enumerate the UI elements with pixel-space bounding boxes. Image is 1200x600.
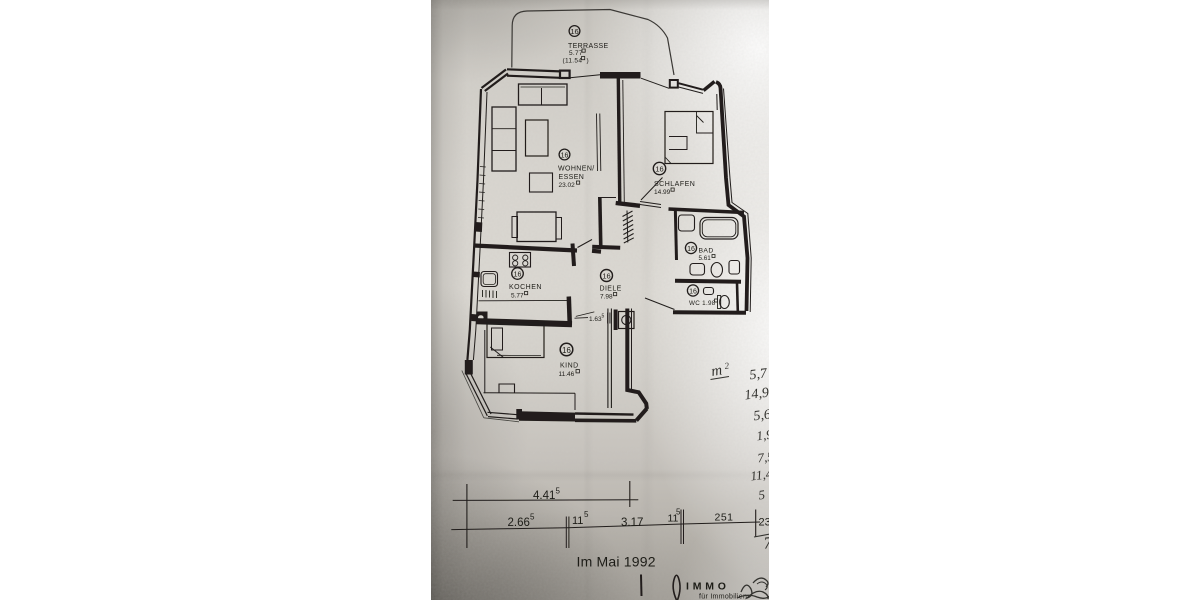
svg-text:5: 5 (556, 487, 561, 496)
svg-text:WC 1.98: WC 1.98 (689, 300, 716, 307)
svg-text:16: 16 (689, 289, 697, 296)
svg-text:1.63: 1.63 (589, 316, 602, 323)
svg-text:5: 5 (602, 314, 605, 320)
svg-text:14,9: 14,9 (744, 386, 770, 404)
svg-text:11,4: 11,4 (750, 466, 774, 484)
svg-text:KIND: KIND (560, 363, 579, 370)
svg-text:14.99: 14.99 (654, 189, 671, 196)
svg-text:2.66: 2.66 (508, 517, 530, 529)
svg-text:BAD: BAD (699, 248, 714, 255)
svg-text:16: 16 (655, 165, 663, 174)
svg-text:SCHLAFEN: SCHLAFEN (654, 181, 695, 188)
svg-text:1,9: 1,9 (756, 426, 774, 443)
svg-text:5: 5 (584, 510, 589, 519)
svg-text:(11.54: (11.54 (563, 58, 583, 65)
svg-text:Im Mai 1992: Im Mai 1992 (577, 554, 656, 570)
svg-text:5.77: 5.77 (511, 293, 524, 300)
svg-text:23: 23 (759, 517, 771, 529)
svg-text:7.98: 7.98 (600, 294, 613, 301)
svg-text:3.17: 3.17 (621, 517, 643, 529)
svg-text:4.41: 4.41 (533, 490, 555, 502)
svg-text:16: 16 (602, 272, 610, 281)
svg-text:7,5: 7,5 (757, 449, 775, 466)
svg-text:IMMO: IMMO (686, 581, 730, 593)
svg-text:5.61: 5.61 (699, 255, 712, 262)
svg-text:5,6: 5,6 (753, 407, 772, 424)
svg-text:16: 16 (514, 272, 522, 279)
svg-text:16: 16 (687, 246, 695, 253)
svg-text:): ) (587, 58, 589, 65)
svg-text:11: 11 (572, 515, 583, 527)
svg-text:5: 5 (530, 513, 535, 522)
svg-text:11.46: 11.46 (559, 371, 575, 378)
svg-text:TERRASSE: TERRASSE (568, 43, 609, 50)
svg-text:16: 16 (562, 346, 571, 355)
svg-text:ESSEN: ESSEN (559, 174, 585, 181)
svg-text:5: 5 (676, 508, 681, 517)
svg-text:5,7: 5,7 (749, 366, 769, 383)
svg-text:DIELE: DIELE (600, 286, 622, 293)
svg-text:WOHNEN/: WOHNEN/ (558, 166, 595, 173)
svg-text:7: 7 (763, 533, 775, 553)
svg-text:16: 16 (561, 153, 569, 160)
svg-text:5.77: 5.77 (569, 50, 583, 57)
svg-text:251: 251 (715, 512, 734, 524)
svg-text:23.02: 23.02 (559, 182, 576, 189)
svg-text:KOCHEN: KOCHEN (509, 284, 542, 291)
svg-text:16: 16 (570, 27, 578, 36)
